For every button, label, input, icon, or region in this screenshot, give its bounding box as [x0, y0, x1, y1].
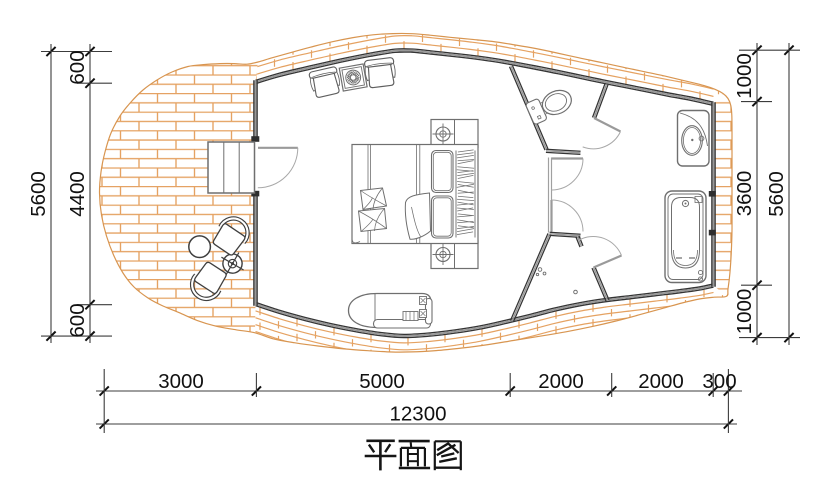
svg-text:600: 600	[66, 303, 89, 337]
svg-text:2000: 2000	[638, 370, 684, 393]
svg-text:12300: 12300	[389, 403, 446, 426]
svg-text:600: 600	[66, 50, 89, 84]
svg-text:5600: 5600	[765, 171, 788, 217]
svg-text:5600: 5600	[27, 171, 50, 217]
svg-text:3600: 3600	[733, 171, 756, 217]
svg-text:300: 300	[702, 370, 736, 393]
svg-text:1000: 1000	[733, 53, 756, 99]
svg-text:2000: 2000	[538, 370, 584, 393]
svg-text:1000: 1000	[733, 289, 756, 335]
svg-text:3000: 3000	[158, 370, 204, 393]
svg-text:5000: 5000	[359, 370, 405, 393]
svg-text:4400: 4400	[66, 171, 89, 217]
